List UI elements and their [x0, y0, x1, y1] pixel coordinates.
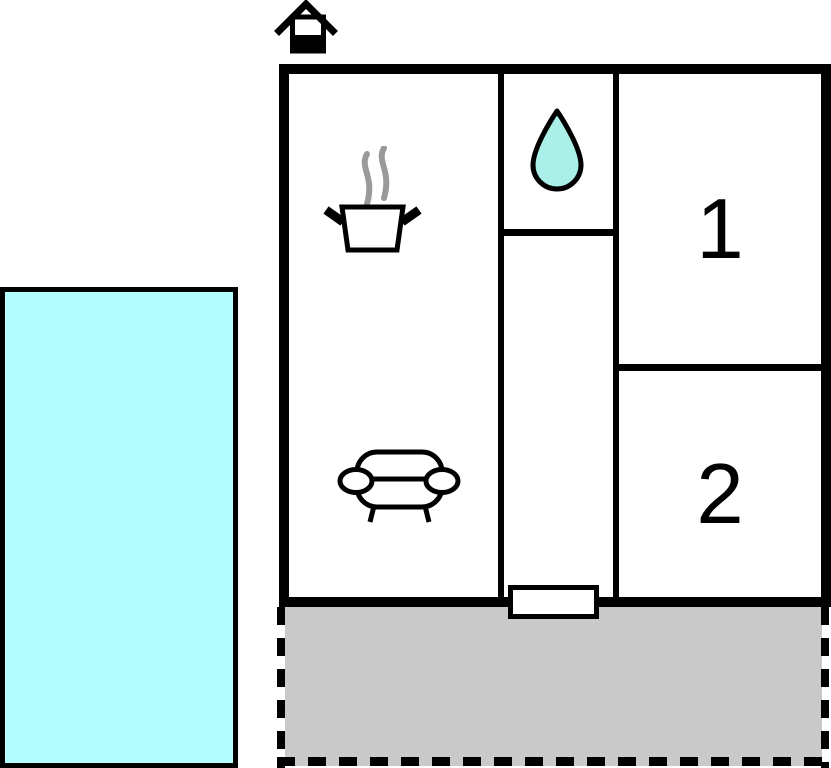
terrace-dashed-border-left [277, 607, 285, 768]
room-bedroom-2: 2 [619, 371, 821, 597]
steam-line-right [382, 148, 387, 198]
terrace-dashed-border-bottom [277, 757, 830, 766]
sofa-svg [337, 448, 461, 524]
room-hallway [504, 236, 613, 597]
house-body-fill [290, 35, 326, 53]
pot-body [342, 207, 403, 250]
room-bedroom-1: 1 [619, 74, 821, 364]
interior-wall-bedroom-divider [619, 364, 821, 371]
terrace-dashed-border-right [821, 607, 829, 768]
floorplan-stage: 1 2 [0, 0, 831, 768]
entrance-door [508, 585, 599, 619]
sofa-icon [337, 448, 461, 524]
water-drop-shape [533, 111, 581, 189]
sofa-armrest-right [426, 470, 458, 493]
steam-line-left [365, 154, 370, 204]
swimming-pool [0, 287, 238, 768]
interior-wall-hall-right [613, 74, 619, 597]
interior-wall-hall-left [498, 74, 504, 597]
bedroom-2-label: 2 [696, 452, 743, 537]
terrace [285, 607, 822, 766]
cooking-pot-icon [320, 146, 424, 254]
house-chimney-icon [274, 0, 338, 58]
sofa-armrest-left [340, 470, 372, 493]
cooking-pot-svg [320, 146, 424, 254]
water-drop-icon [529, 108, 585, 192]
water-drop-svg [529, 108, 585, 192]
bedroom-1-label: 1 [696, 187, 743, 272]
interior-wall-bathroom [498, 229, 619, 236]
house-chimney-svg [274, 0, 338, 58]
